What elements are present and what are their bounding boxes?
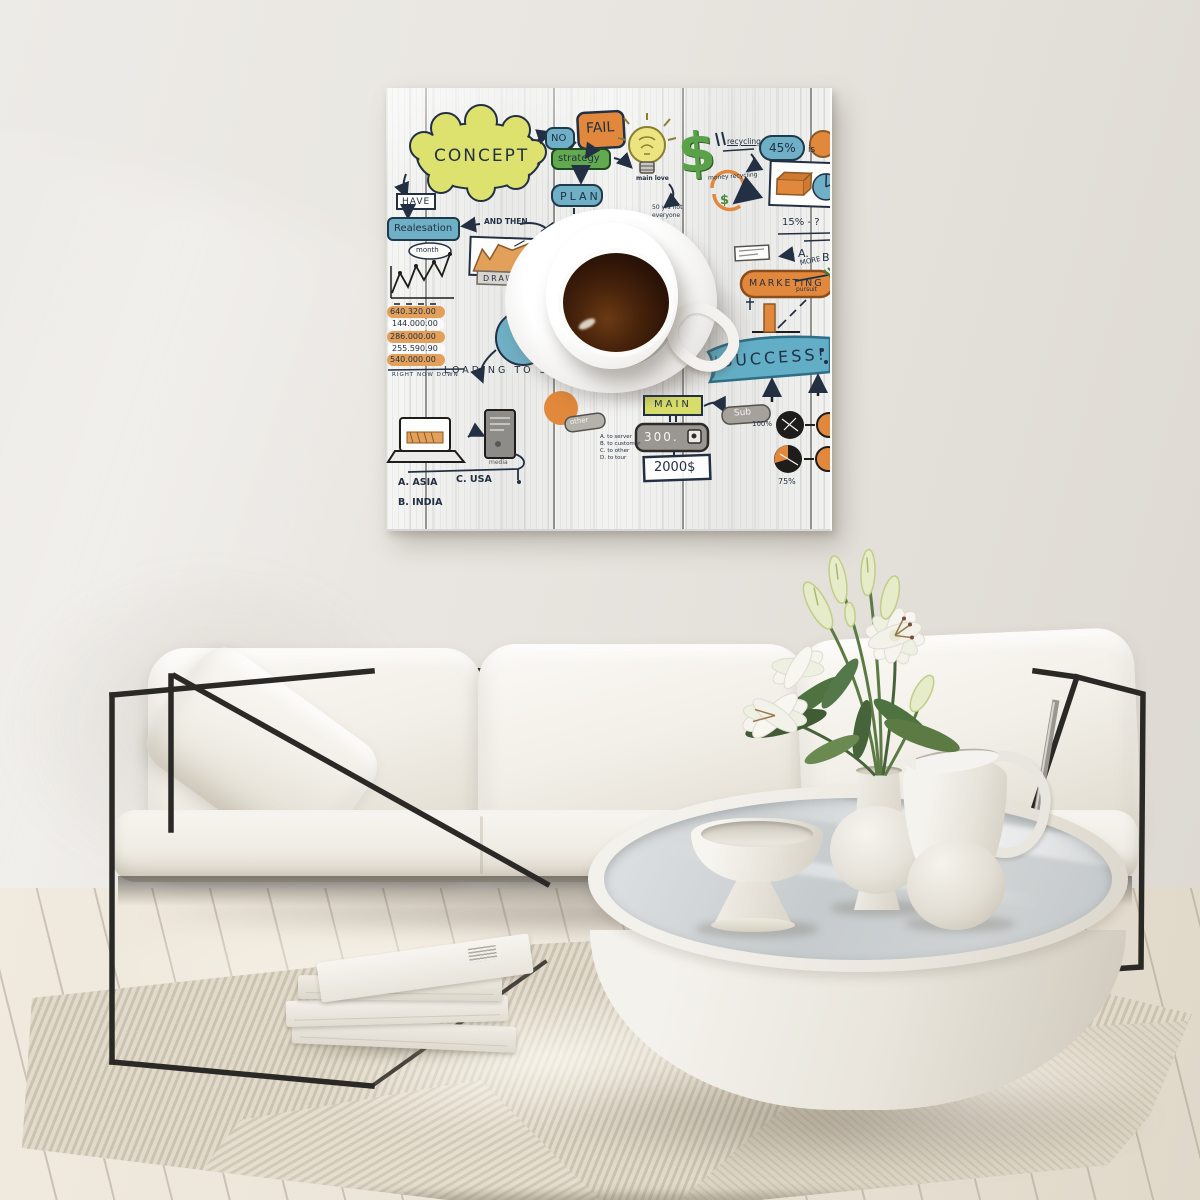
- lightbulb-doodle: [618, 113, 676, 206]
- pct45-label: 45%: [769, 142, 796, 154]
- letter-b-label: B.: [822, 252, 832, 263]
- pedestal-bowl-interior: [701, 821, 813, 847]
- line-chart-doodle: [391, 252, 454, 304]
- region-b-label: B. INDIA: [398, 498, 442, 508]
- laptop-server-group: [388, 410, 524, 484]
- delivery-item: A. to server: [600, 434, 640, 441]
- coffee-surface: [558, 248, 674, 357]
- n2000-label: 2000$: [654, 461, 695, 474]
- fail-label: FAIL: [586, 120, 615, 135]
- figure-row: 540.000.00: [390, 356, 436, 364]
- no-label: NO: [551, 134, 566, 144]
- month-label: month: [416, 247, 439, 254]
- figure-row: 640.320.00: [390, 308, 436, 316]
- figure-row: 255.590.90: [392, 345, 438, 353]
- plan-label: PLAN: [560, 191, 601, 202]
- brick-pie-box: [769, 161, 830, 207]
- region-c-label: C. USA: [456, 475, 492, 485]
- have-label: HAVE: [402, 198, 430, 207]
- pie-charts-bottom-right: [774, 411, 830, 473]
- delivery-item: C. to other: [600, 448, 640, 455]
- pct75-label: 75%: [778, 478, 796, 486]
- and-then-label: AND THEN...: [484, 218, 536, 226]
- concept-label: CONCEPT: [434, 148, 529, 165]
- living-room-photo: CONCEPT HAVE Realesation month AND THEN.…: [0, 0, 1200, 1200]
- pct15-label: 15% - ?: [782, 218, 820, 228]
- pursuit-label: pursuit: [796, 287, 817, 293]
- delivery-item: B. to customer: [600, 441, 640, 448]
- bulb-note-label: main love: [636, 176, 669, 182]
- lily-bouquet: [690, 515, 1010, 790]
- realisation-label: Realesation: [394, 224, 452, 234]
- ball-vase: [907, 840, 1005, 930]
- dollar-icon: $: [676, 125, 717, 181]
- sub-label: Sub: [734, 408, 752, 418]
- pct100-label: 100%: [752, 421, 772, 428]
- seat-seam: [480, 816, 483, 874]
- is-label: is: [808, 146, 815, 155]
- wall-art-canvas: CONCEPT HAVE Realesation month AND THEN.…: [386, 88, 832, 531]
- recycling-label: recycling: [727, 138, 761, 146]
- media-label: media: [489, 460, 508, 466]
- book-barcode-block: [468, 945, 498, 963]
- figure-row: 286.000.00: [390, 333, 436, 341]
- strategy-label: strategy: [558, 154, 600, 164]
- figure-row: 144.000.00: [392, 320, 438, 328]
- delivery-list: A. to server B. to customer C. to other …: [600, 434, 640, 462]
- recycle-dollar-icon: $: [720, 194, 729, 207]
- delivery-item: D. to tour: [600, 455, 640, 462]
- region-a-label: A. ASIA: [398, 478, 438, 488]
- pedestal-bowl-base: [711, 918, 795, 932]
